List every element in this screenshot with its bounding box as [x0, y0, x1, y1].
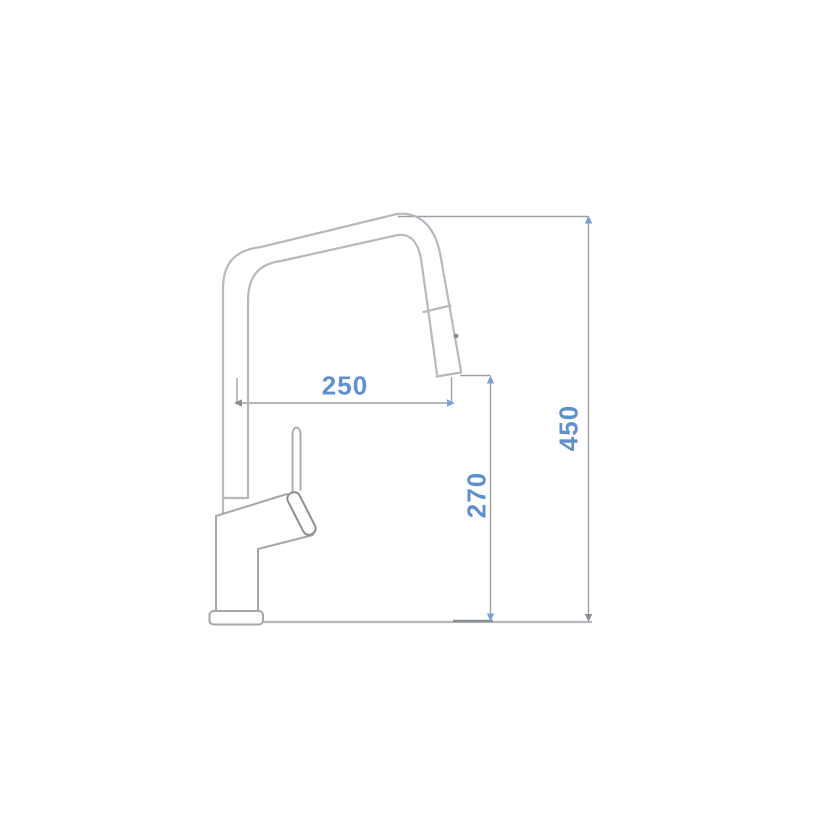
- handle-grip: [285, 490, 317, 537]
- dimension-label-outlet-height: 270: [462, 472, 493, 518]
- handle-lever-rod: [293, 428, 301, 493]
- body-under-right-edge: [258, 535, 313, 612]
- drawing-canvas: 250 270 450: [0, 0, 820, 820]
- dim-270-top-arrow: [487, 376, 494, 384]
- spout-outer-path: [223, 214, 461, 513]
- spray-head-outlet-line: [437, 373, 462, 377]
- spray-head-button-dot: [454, 334, 459, 339]
- dim-450-bottom-arrow: [585, 614, 592, 622]
- dim-250-left-arrow: [234, 399, 242, 406]
- base-plinth: [210, 611, 264, 625]
- faucet-body: [210, 428, 318, 625]
- dimension-label-overall-height: 450: [554, 405, 585, 451]
- faucet-outline: [223, 214, 461, 513]
- dimension-label-reach: 250: [322, 371, 368, 402]
- body-top-left-edge: [216, 494, 287, 612]
- dimension-arrows: [234, 216, 592, 623]
- spout-inner-path: [248, 235, 437, 497]
- faucet-technical-drawing: [0, 0, 820, 820]
- dimension-lines: [237, 217, 589, 621]
